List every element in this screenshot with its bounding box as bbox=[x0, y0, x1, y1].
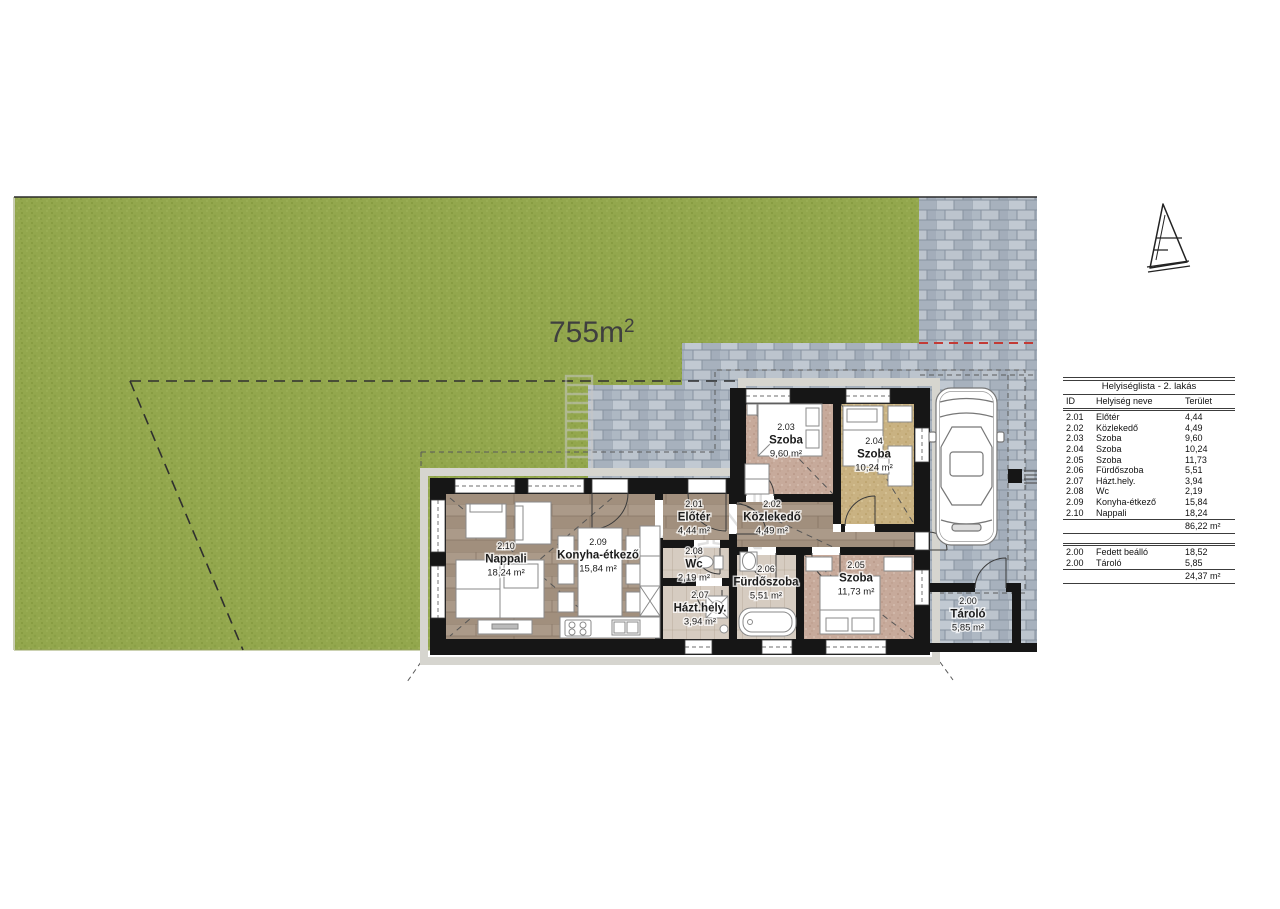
outdoor-table-row: 2.00Tároló5,85 bbox=[1063, 558, 1235, 569]
room-table-cell-area: 2,19 bbox=[1185, 486, 1235, 497]
room-table-cell-area: 5,51 bbox=[1185, 465, 1235, 476]
room-table-row: 2.03Szoba9,60 bbox=[1063, 433, 1235, 444]
room-table-cell-name: Közlekedő bbox=[1096, 423, 1185, 434]
room-table-rows: 2.01Előtér4,442.02Közlekedő4,492.03Szoba… bbox=[1063, 410, 1235, 519]
outdoor-table-section: 2.00Fedett beálló18,522.00Tároló5,85 24,… bbox=[1063, 543, 1235, 584]
outdoor-table-row: 2.00Fedett beálló18,52 bbox=[1063, 547, 1235, 558]
car-top-view-icon bbox=[929, 388, 1004, 545]
carport-pillar bbox=[1008, 469, 1022, 483]
outdoor-table-cell-id: 2.00 bbox=[1063, 558, 1096, 569]
outdoor-table-cell-id: 2.00 bbox=[1063, 547, 1096, 558]
room-table-row: 2.01Előtér4,44 bbox=[1063, 412, 1235, 423]
room-table-cell-id: 2.05 bbox=[1063, 455, 1096, 466]
room-table-row: 2.05Szoba11,73 bbox=[1063, 455, 1235, 466]
outdoor-table-cell-area: 18,52 bbox=[1185, 547, 1235, 558]
room-table-total: 86,22 m² bbox=[1185, 521, 1235, 532]
room-table-row: 2.06Fürdőszoba5,51 bbox=[1063, 465, 1235, 476]
room-table-cell-id: 2.10 bbox=[1063, 508, 1096, 519]
room-table-cell-id: 2.06 bbox=[1063, 465, 1096, 476]
room-table-cell-area: 4,44 bbox=[1185, 412, 1235, 423]
room-table-cell-name: Szoba bbox=[1096, 433, 1185, 444]
room-table-cell-id: 2.02 bbox=[1063, 423, 1096, 434]
room-table-cell-area: 4,49 bbox=[1185, 423, 1235, 434]
outdoor-table-total: 24,37 m² bbox=[1185, 571, 1235, 582]
lawn-area-label: 755m2 bbox=[549, 316, 635, 349]
room-list-table: Helyiséglista - 2. lakás ID Helyiség nev… bbox=[1063, 377, 1235, 584]
room-table-cell-area: 9,60 bbox=[1185, 433, 1235, 444]
outdoor-table-rows: 2.00Fedett beálló18,522.00Tároló5,85 bbox=[1063, 545, 1235, 569]
room-table-row: 2.02Közlekedő4,49 bbox=[1063, 423, 1235, 434]
outdoor-table-cell-name: Tároló bbox=[1096, 558, 1185, 569]
room-table-cell-name: Konyha-étkező bbox=[1096, 497, 1185, 508]
room-table-cell-id: 2.04 bbox=[1063, 444, 1096, 455]
kitchen-dining-furniture bbox=[558, 526, 660, 638]
room-table-cell-name: Előtér bbox=[1096, 412, 1185, 423]
room-table-cell-area: 15,84 bbox=[1185, 497, 1235, 508]
room-table-cell-name: Fürdőszoba bbox=[1096, 465, 1185, 476]
room-table-cell-area: 10,24 bbox=[1185, 444, 1235, 455]
room-table-cell-name: Szoba bbox=[1096, 444, 1185, 455]
room-table-total-row: 86,22 m² bbox=[1063, 519, 1235, 534]
room-table-cell-name: Wc bbox=[1096, 486, 1185, 497]
room-table-cell-id: 2.09 bbox=[1063, 497, 1096, 508]
room-table-row: 2.07Házt.hely.3,94 bbox=[1063, 476, 1235, 487]
room-table-header-id: ID bbox=[1063, 396, 1096, 407]
room-table-title: Helyiséglista - 2. lakás bbox=[1063, 381, 1235, 396]
outdoor-table-total-row: 24,37 m² bbox=[1063, 569, 1235, 584]
room-table-cell-area: 11,73 bbox=[1185, 455, 1235, 466]
room-table-header-area: Terület bbox=[1185, 396, 1235, 407]
north-arrow-icon bbox=[1147, 204, 1190, 272]
outdoor-table-cell-area: 5,85 bbox=[1185, 558, 1235, 569]
outdoor-table-cell-name: Fedett beálló bbox=[1096, 547, 1185, 558]
room-table-cell-area: 18,24 bbox=[1185, 508, 1235, 519]
room-table-row: 2.09Konyha-étkező15,84 bbox=[1063, 497, 1235, 508]
room-table-cell-name: Házt.hely. bbox=[1096, 476, 1185, 487]
room-table-cell-id: 2.07 bbox=[1063, 476, 1096, 487]
room-table-cell-id: 2.08 bbox=[1063, 486, 1096, 497]
room-table-cell-name: Nappali bbox=[1096, 508, 1185, 519]
room-table-row: 2.04Szoba10,24 bbox=[1063, 444, 1235, 455]
room-table-cell-id: 2.03 bbox=[1063, 433, 1096, 444]
room-table-header: ID Helyiség neve Terület bbox=[1063, 395, 1235, 409]
room-table-header-name: Helyiség neve bbox=[1096, 396, 1185, 407]
site-plan-canvas: GDN 755m2 bbox=[0, 0, 1280, 904]
room-table-cell-id: 2.01 bbox=[1063, 412, 1096, 423]
room-table-cell-area: 3,94 bbox=[1185, 476, 1235, 487]
room-table-row: 2.08Wc2,19 bbox=[1063, 486, 1235, 497]
room-table-row: 2.10Nappali18,24 bbox=[1063, 508, 1235, 519]
room-table-cell-name: Szoba bbox=[1096, 455, 1185, 466]
